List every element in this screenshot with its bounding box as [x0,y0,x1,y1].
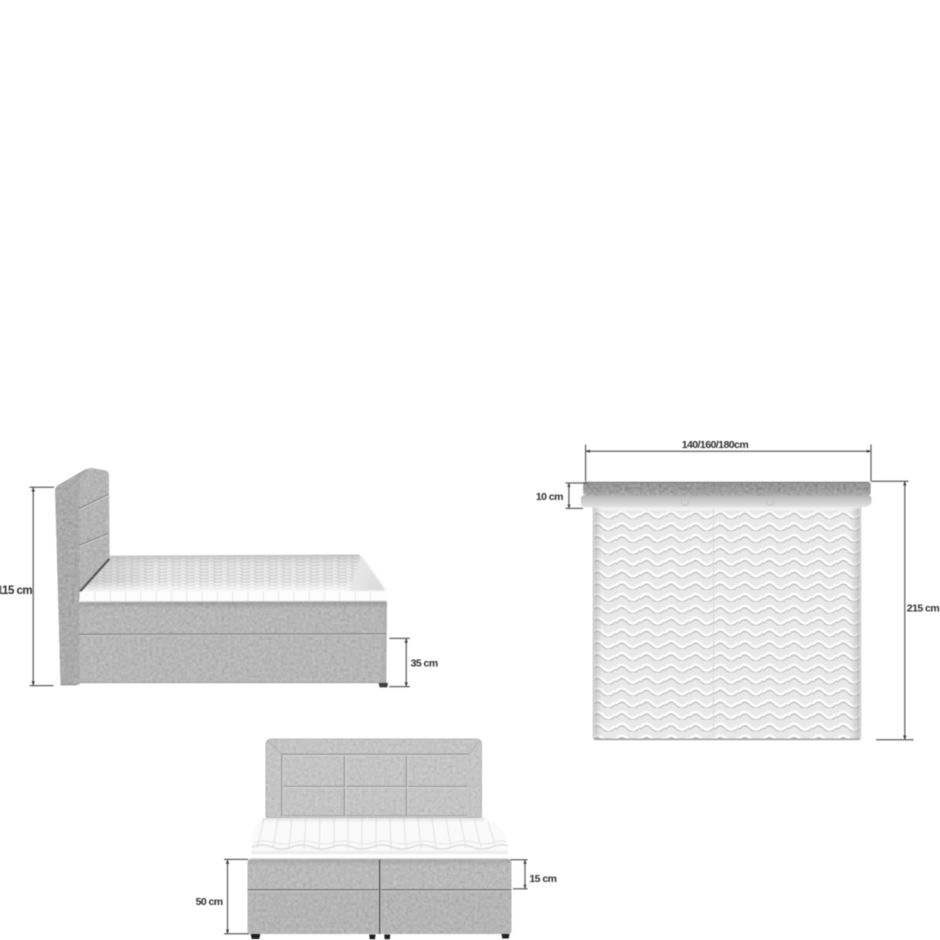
svg-text:215 cm: 215 cm [907,602,940,614]
svg-text:140/160/180cm: 140/160/180cm [682,439,749,451]
svg-text:50 cm: 50 cm [196,896,223,908]
svg-text:10 cm: 10 cm [536,491,563,503]
svg-text:35 cm: 35 cm [411,658,438,670]
svg-text:115 cm: 115 cm [0,585,32,597]
svg-text:15 cm: 15 cm [529,873,556,885]
